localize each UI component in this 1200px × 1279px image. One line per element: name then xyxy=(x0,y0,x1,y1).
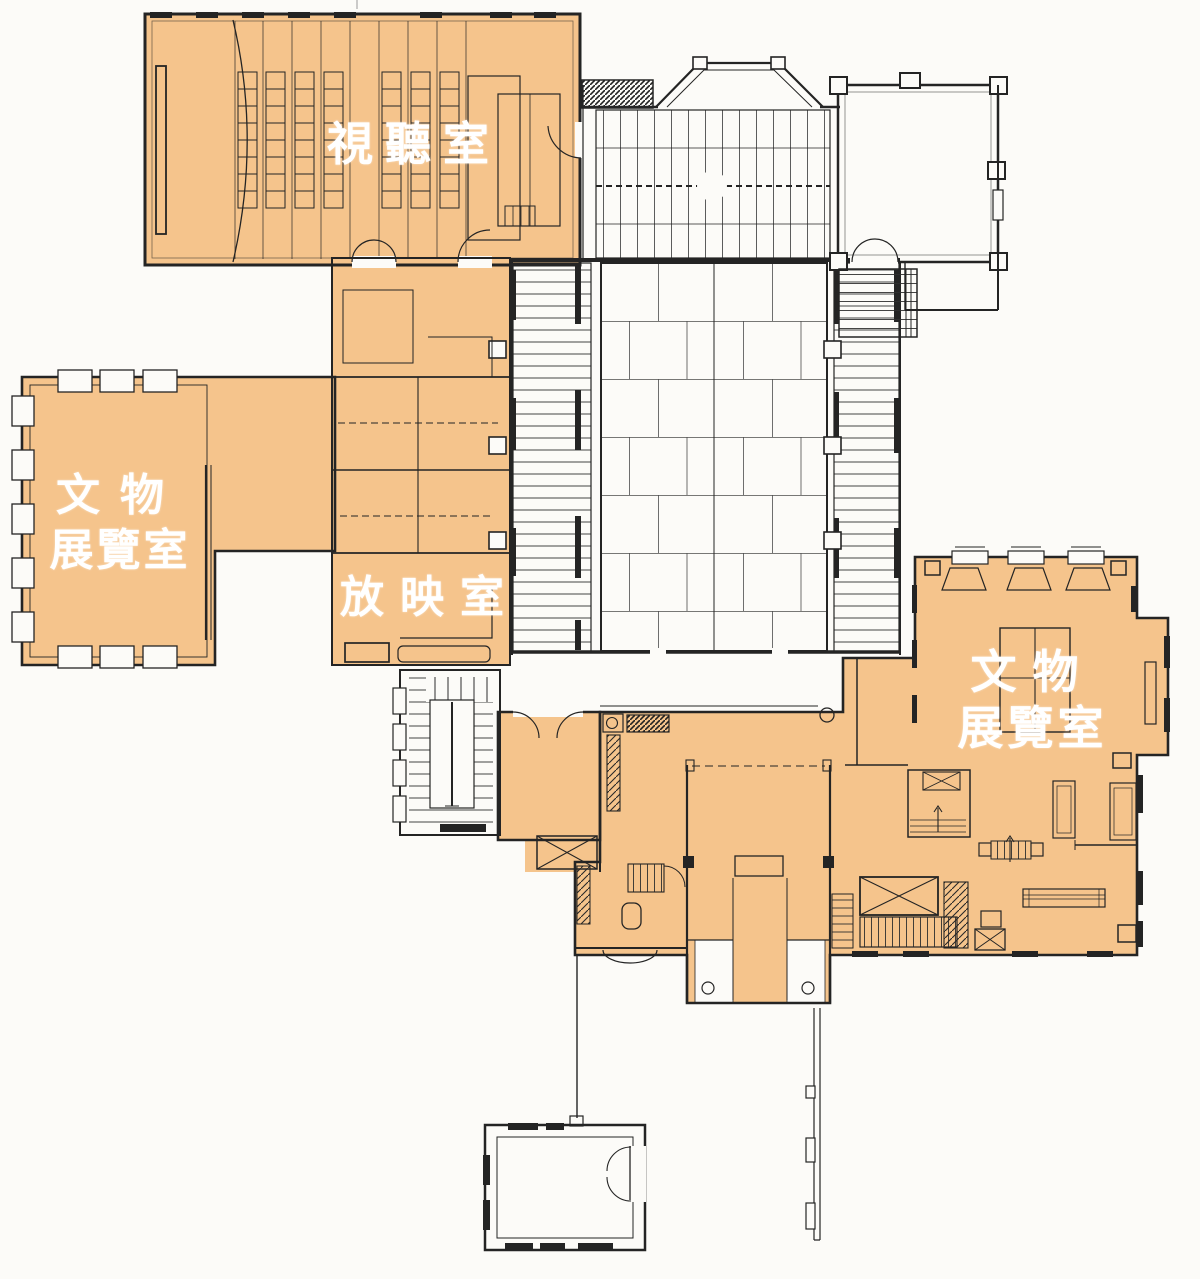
north-window-slots xyxy=(952,547,1104,564)
canopy-post xyxy=(693,57,707,69)
room-label-audio-visual: 視聽室 xyxy=(327,117,501,172)
room-label-text: 文物 xyxy=(30,468,210,523)
hatched-steps xyxy=(944,882,968,948)
north-windows xyxy=(150,12,556,18)
southwest-stairwell xyxy=(393,670,500,835)
stair-balustrade xyxy=(860,917,957,947)
vestibule-pocket-west xyxy=(695,940,733,1003)
corner-columns xyxy=(830,73,1007,270)
south-small-room-region xyxy=(498,712,600,840)
room-label-text: 放映室 xyxy=(340,573,520,622)
room-label-east-exhibition: 文物 展覽室 xyxy=(945,645,1120,757)
gatehouse-wall-dashes xyxy=(483,1123,613,1250)
room-label-projection: 放映室 xyxy=(340,572,520,625)
floor-plan: 視聽室 文物 展覽室 放映室 文物 展覽室 xyxy=(0,0,1200,1279)
hatched-wall-strip xyxy=(607,735,620,811)
room-label-text: 文物 xyxy=(945,645,1120,701)
window-slot xyxy=(993,190,1003,220)
room-label-text: 展覽室 xyxy=(30,523,210,578)
northeast-room xyxy=(830,73,1007,337)
gatehouse xyxy=(485,1125,645,1250)
gatehouse-double-door xyxy=(607,1147,631,1201)
floor-plan-drawing xyxy=(0,0,1200,1279)
room-label-west-exhibition: 文物 展覽室 xyxy=(30,468,210,578)
entrance-steps-block xyxy=(582,80,653,108)
room-label-text: 視聽室 xyxy=(327,119,501,170)
room-label-text: 展覽室 xyxy=(945,701,1120,757)
small-stair xyxy=(628,864,664,892)
grid-erasure-blob xyxy=(697,171,727,201)
canopy-post xyxy=(771,57,785,69)
